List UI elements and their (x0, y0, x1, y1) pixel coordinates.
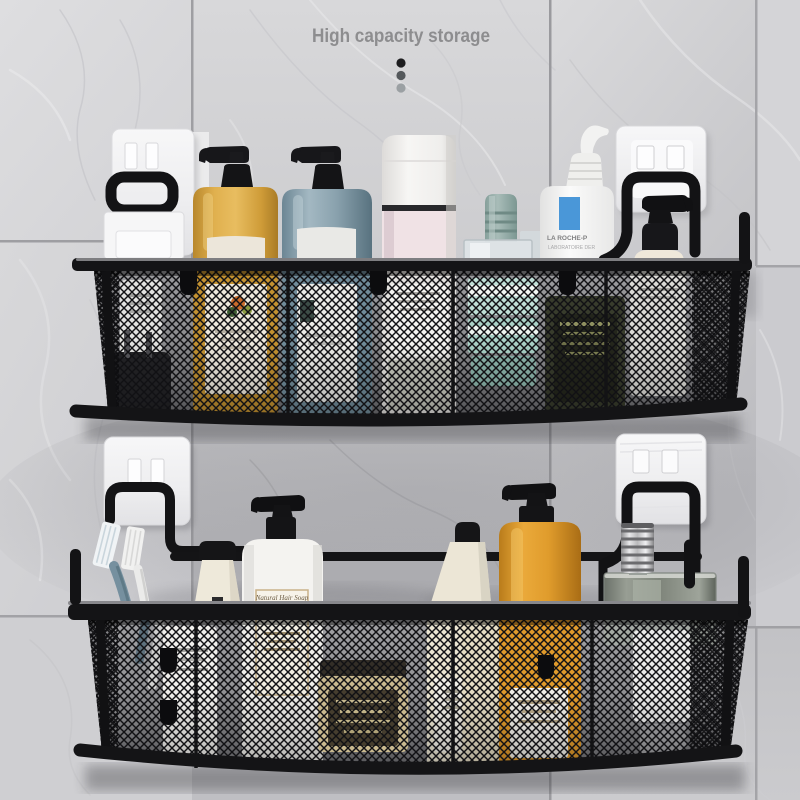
svg-text:High capacity storage: High capacity storage (312, 26, 490, 47)
svg-text:LA ROCHE-P: LA ROCHE-P (547, 235, 588, 242)
svg-text:LABORATOIRE DER: LABORATOIRE DER (548, 245, 595, 251)
svg-text:Natural Hair Soap: Natural Hair Soap (255, 594, 309, 602)
